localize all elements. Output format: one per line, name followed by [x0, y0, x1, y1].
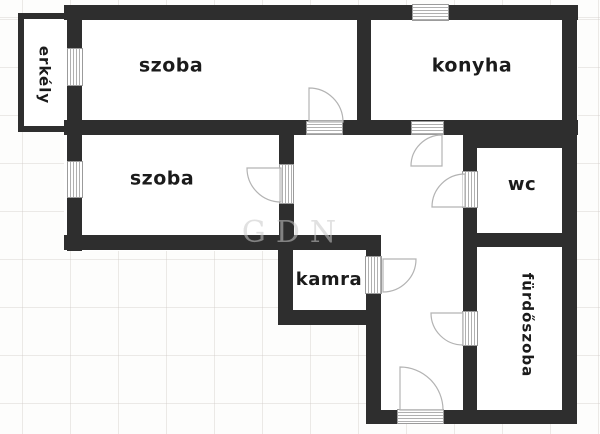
room-label-erkely: erkély — [37, 46, 52, 104]
room-label-furdoszoba: fürdőszoba — [520, 273, 535, 377]
door-swing-konyha-icon — [411, 135, 442, 166]
door-swing-furdo-icon — [431, 313, 463, 345]
room-label-konyha: konyha — [432, 57, 512, 76]
door-swing-wc-icon — [432, 174, 465, 207]
door-swing-kamra-icon — [383, 259, 416, 292]
door-swing-szoba1-icon — [309, 88, 343, 122]
floor-plan-canvas: szoba konyha szoba wc kamra erkély fürdő… — [0, 0, 600, 434]
room-label-kamra: kamra — [296, 271, 362, 289]
room-label-szoba-1: szoba — [139, 57, 203, 76]
room-label-wc: wc — [508, 176, 536, 194]
door-swing-szoba2-icon — [247, 168, 281, 202]
room-label-szoba-2: szoba — [130, 170, 194, 189]
door-swing-entrance-icon — [400, 367, 443, 410]
